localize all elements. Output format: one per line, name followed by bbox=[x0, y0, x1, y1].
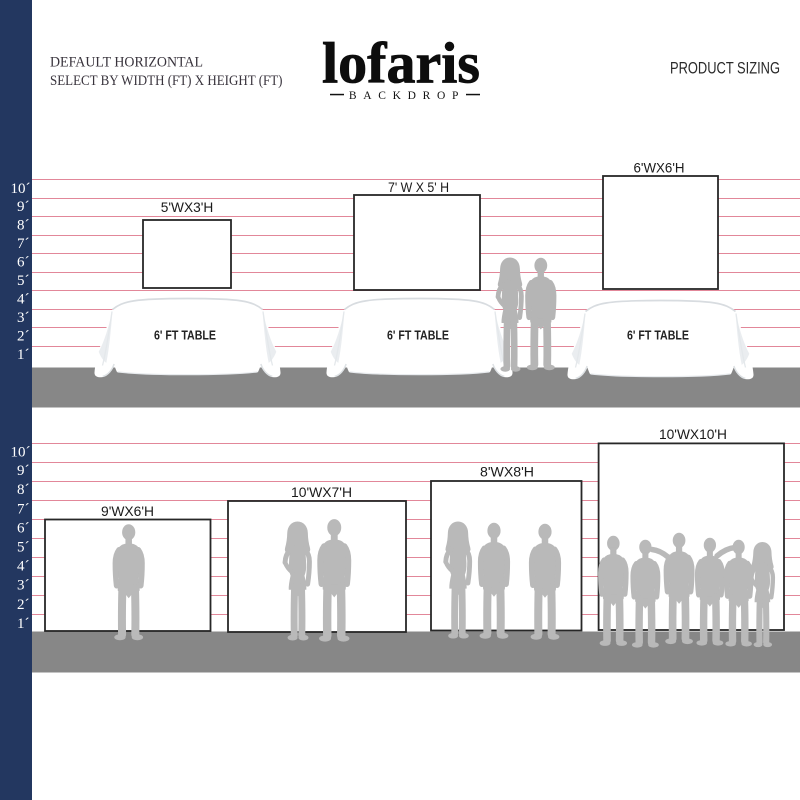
svg-text:8´: 8´ bbox=[17, 218, 30, 234]
svg-text:1´: 1´ bbox=[17, 616, 30, 632]
svg-text:PRODUCT SIZING: PRODUCT SIZING bbox=[670, 60, 780, 78]
svg-text:10'WX7'H: 10'WX7'H bbox=[291, 484, 352, 500]
svg-text:7´: 7´ bbox=[17, 501, 30, 517]
svg-text:6' FT TABLE: 6' FT TABLE bbox=[154, 328, 216, 343]
svg-text:6'WX6'H: 6'WX6'H bbox=[634, 160, 685, 176]
svg-text:6' FT TABLE: 6' FT TABLE bbox=[387, 328, 449, 343]
svg-text:SELECT BY WIDTH (FT) X HEIGHT: SELECT BY WIDTH (FT) X HEIGHT (FT) bbox=[50, 73, 283, 89]
svg-text:10´: 10´ bbox=[11, 445, 31, 461]
svg-text:10'WX10'H: 10'WX10'H bbox=[659, 426, 727, 442]
svg-text:2´: 2´ bbox=[17, 329, 30, 345]
svg-text:8´: 8´ bbox=[17, 482, 30, 498]
svg-text:5'WX3'H: 5'WX3'H bbox=[161, 199, 214, 215]
svg-text:DEFAULT HORIZONTAL: DEFAULT HORIZONTAL bbox=[50, 55, 203, 71]
svg-text:6' FT TABLE: 6' FT TABLE bbox=[627, 328, 689, 343]
svg-text:2´: 2´ bbox=[17, 597, 30, 613]
svg-text:6´: 6´ bbox=[17, 520, 30, 536]
svg-text:9'WX6'H: 9'WX6'H bbox=[101, 503, 154, 519]
svg-text:BACKDROP: BACKDROP bbox=[349, 90, 465, 102]
svg-text:5´: 5´ bbox=[17, 540, 30, 556]
svg-text:4´: 4´ bbox=[17, 292, 30, 308]
svg-text:8'WX8'H: 8'WX8'H bbox=[480, 464, 534, 480]
svg-text:7' W X 5' H: 7' W X 5' H bbox=[388, 179, 449, 195]
svg-text:4´: 4´ bbox=[17, 559, 30, 575]
svg-text:3´: 3´ bbox=[17, 578, 30, 594]
svg-text:9´: 9´ bbox=[17, 199, 30, 215]
svg-text:6´: 6´ bbox=[17, 255, 30, 271]
svg-text:5´: 5´ bbox=[17, 273, 30, 289]
svg-text:lofaris: lofaris bbox=[322, 31, 480, 96]
svg-text:3´: 3´ bbox=[17, 310, 30, 326]
svg-text:1´: 1´ bbox=[17, 347, 30, 363]
svg-text:9´: 9´ bbox=[17, 463, 30, 479]
svg-text:10´: 10´ bbox=[11, 181, 31, 197]
svg-text:7´: 7´ bbox=[17, 236, 30, 252]
